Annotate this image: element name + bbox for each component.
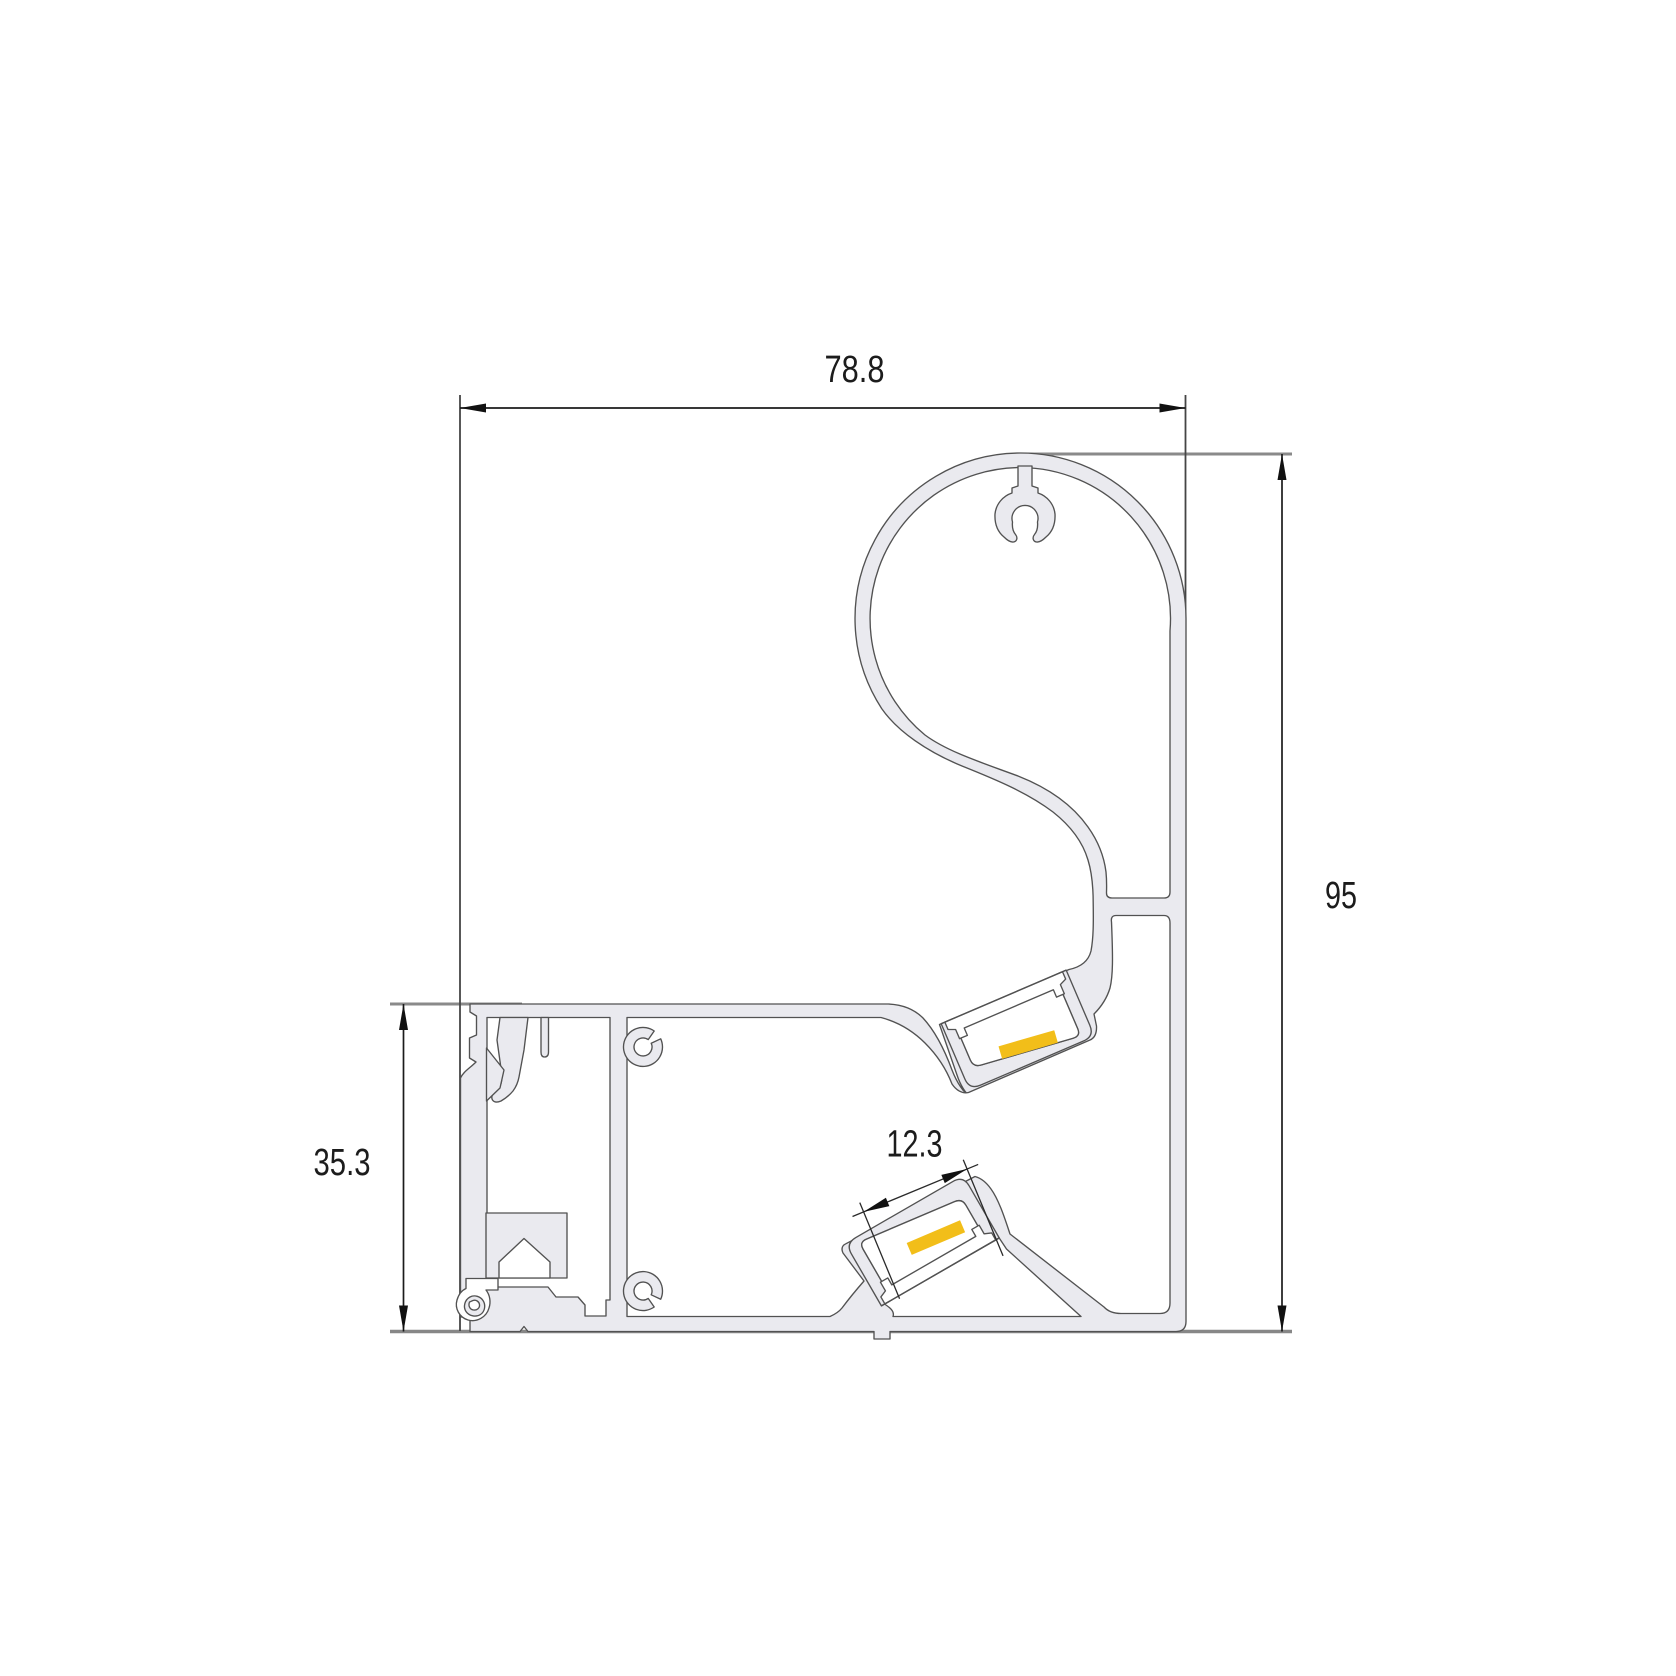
svg-text:35.3: 35.3 — [314, 1142, 371, 1184]
svg-text:12.3: 12.3 — [887, 1124, 943, 1166]
svg-text:78.8: 78.8 — [825, 349, 885, 391]
svg-text:95: 95 — [1325, 875, 1357, 917]
